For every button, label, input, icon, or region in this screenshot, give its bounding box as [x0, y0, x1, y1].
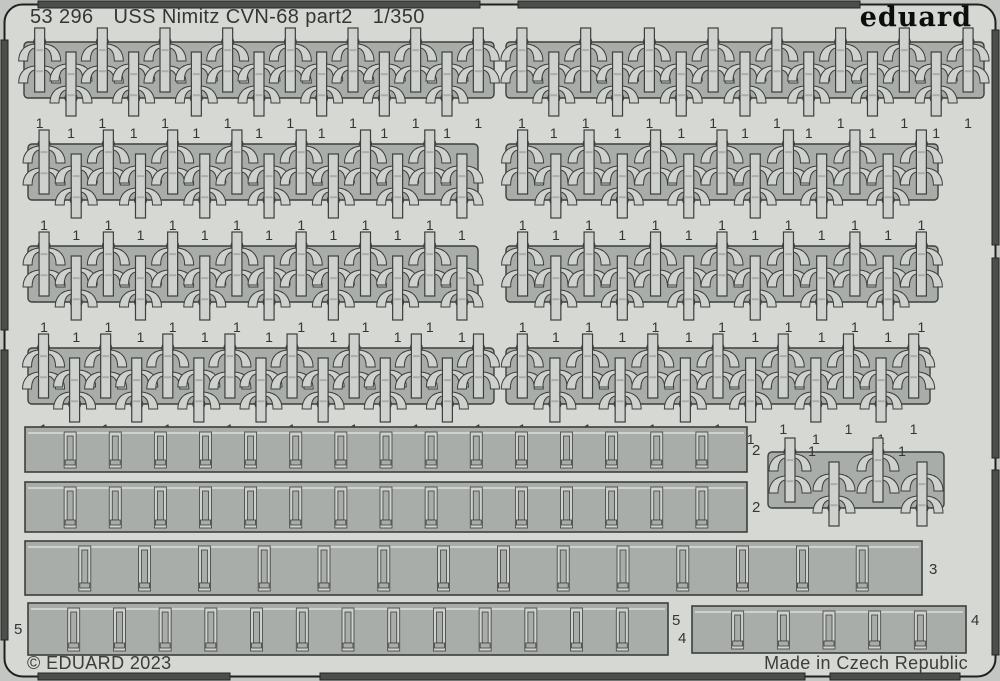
part-number-label: 1 — [67, 125, 75, 141]
slot-post-foot — [738, 583, 748, 588]
part-number-label: 1 — [458, 329, 466, 345]
post-etch-line — [965, 49, 972, 51]
slot-post — [162, 612, 168, 643]
post-etch-line — [812, 379, 819, 381]
post-etch-line — [652, 151, 659, 153]
post-etch-line — [318, 73, 325, 75]
part-number-label: 1 — [585, 217, 593, 233]
stanchion-post — [613, 52, 623, 116]
slot-post-foot — [155, 460, 165, 465]
stanchion-post — [71, 154, 81, 218]
post-etch-line — [137, 277, 144, 279]
slot-post — [872, 615, 878, 641]
post-etch-line — [685, 277, 692, 279]
post-etch-line — [901, 70, 908, 72]
slot-post-foot — [336, 520, 346, 525]
post-etch-line — [649, 376, 656, 378]
stanchion-post — [411, 28, 421, 92]
post-etch-line — [552, 175, 559, 177]
part-number-label: 1 — [380, 125, 388, 141]
frame-bar — [38, 673, 230, 680]
stanchion-post — [811, 358, 821, 422]
slot-post — [654, 436, 660, 460]
part-number-label: 1 — [265, 227, 273, 243]
frame-bar — [1, 40, 8, 330]
part-number-label: 1 — [751, 329, 759, 345]
part-number-label: 1 — [779, 421, 787, 437]
stanchion-post — [393, 154, 403, 218]
slot-post — [441, 550, 447, 583]
part-number-label: 1 — [72, 329, 80, 345]
stanchion-post — [717, 232, 727, 296]
slot-post — [293, 436, 299, 460]
part-number-label: 1 — [98, 115, 106, 131]
post-etch-line — [878, 400, 885, 402]
post-etch-line — [318, 94, 325, 96]
slot-post-foot — [498, 583, 508, 588]
part-number-label: 1 — [233, 217, 241, 233]
post-etch-line — [287, 70, 294, 72]
post-etch-line — [201, 298, 208, 300]
part-number-label: 1 — [224, 115, 232, 131]
slot-post-foot — [65, 460, 75, 465]
post-etch-line — [646, 49, 653, 51]
stanchion-post — [916, 232, 926, 296]
post-etch-line — [780, 376, 787, 378]
post-etch-line — [350, 49, 357, 51]
sheet-id: 53 296 — [30, 6, 94, 28]
slot-post — [201, 550, 207, 583]
top-rail-etch — [28, 546, 919, 548]
slot-post — [619, 612, 625, 643]
post-etch-line — [71, 400, 78, 402]
slot-post-foot — [870, 641, 880, 646]
stanchion-post — [442, 52, 452, 116]
slot-post-foot — [206, 643, 216, 648]
post-etch-line — [652, 253, 659, 255]
post-etch-line — [785, 172, 792, 174]
stanchion-post — [551, 256, 561, 320]
post-etch-line — [519, 355, 526, 357]
stanchion-post — [785, 438, 795, 502]
stanchion-post — [644, 28, 654, 92]
post-etch-line — [73, 298, 80, 300]
post-etch-line — [351, 376, 358, 378]
part-number-label: 1 — [805, 125, 813, 141]
stanchion-post — [617, 256, 627, 320]
part-number-label: 1 — [443, 125, 451, 141]
part-number-label: 1 — [233, 319, 241, 335]
stanchion-post — [296, 130, 306, 194]
stanchion-post — [899, 28, 909, 92]
post-etch-line — [298, 253, 305, 255]
slot-post-foot — [516, 520, 526, 525]
part-number-label: 1 — [474, 115, 482, 131]
part-number-label: 1 — [104, 319, 112, 335]
post-etch-line — [805, 94, 812, 96]
stanchion-post — [71, 256, 81, 320]
slot-post — [518, 436, 524, 460]
slot-post — [321, 550, 327, 583]
post-etch-line — [362, 274, 369, 276]
slot-post-foot — [379, 583, 389, 588]
stanchion-post — [349, 334, 359, 398]
post-etch-line — [350, 70, 357, 72]
post-etch-line — [71, 379, 78, 381]
stanchion-post — [717, 130, 727, 194]
post-etch-line — [413, 376, 420, 378]
stanchion-post — [160, 28, 170, 92]
part-number-label: 1 — [412, 115, 420, 131]
part-number-label: 1 — [652, 217, 660, 233]
post-etch-line — [918, 253, 925, 255]
post-etch-line — [102, 355, 109, 357]
post-etch-line — [965, 70, 972, 72]
post-etch-line — [885, 277, 892, 279]
stanchion-post — [850, 232, 860, 296]
slot-post — [500, 550, 506, 583]
stanchion-post — [136, 154, 146, 218]
slot-post-foot — [558, 583, 568, 588]
post-etch-line — [193, 73, 200, 75]
part-number-label: 1 — [818, 329, 826, 345]
slot-post — [518, 491, 524, 520]
slot-post — [917, 615, 923, 641]
slot-post-foot — [110, 520, 120, 525]
post-etch-line — [330, 196, 337, 198]
post-etch-line — [719, 172, 726, 174]
slot-post-foot — [857, 583, 867, 588]
post-etch-line — [330, 277, 337, 279]
post-etch-line — [586, 253, 593, 255]
stanchion-post — [132, 358, 142, 422]
part-number-label: 1 — [751, 227, 759, 243]
post-etch-line — [919, 483, 926, 485]
stanchion-post — [103, 130, 113, 194]
stanchion-post — [873, 438, 883, 502]
post-etch-line — [426, 253, 433, 255]
post-etch-line — [233, 274, 240, 276]
stanchion-post — [66, 52, 76, 116]
slot-post-foot — [252, 643, 262, 648]
part-number-label: 5 — [672, 612, 680, 629]
slot-post-foot — [617, 643, 627, 648]
post-etch-line — [582, 49, 589, 51]
slot-post-foot — [426, 520, 436, 525]
part-number-label: 5 — [14, 621, 22, 638]
stanchion-post — [287, 334, 297, 398]
post-etch-line — [289, 355, 296, 357]
post-etch-line — [362, 253, 369, 255]
post-etch-line — [519, 253, 526, 255]
post-etch-line — [68, 73, 75, 75]
slot-post — [528, 612, 534, 643]
slot-post-foot — [915, 641, 925, 646]
post-etch-line — [584, 355, 591, 357]
post-etch-line — [351, 355, 358, 357]
post-etch-line — [444, 400, 451, 402]
post-etch-line — [298, 151, 305, 153]
part-number-label: 1 — [718, 319, 726, 335]
slot-post-foot — [733, 641, 743, 646]
slot-post — [345, 612, 351, 643]
post-etch-line — [685, 175, 692, 177]
post-etch-line — [233, 253, 240, 255]
part-number-label: 1 — [329, 227, 337, 243]
part-number-label: 1 — [394, 227, 402, 243]
slot-post — [780, 615, 786, 641]
stanchion-post — [883, 154, 893, 218]
strip-panel — [25, 541, 922, 595]
part-number-label: 1 — [169, 319, 177, 335]
part-number-label: 1 — [808, 443, 816, 459]
post-etch-line — [918, 172, 925, 174]
post-etch-line — [552, 196, 559, 198]
slot-post — [620, 550, 626, 583]
stanchion-post — [829, 462, 839, 526]
slot-post-foot — [246, 520, 256, 525]
post-etch-line — [933, 73, 940, 75]
stanchion-post — [200, 256, 210, 320]
stanchion-post — [39, 232, 49, 296]
stanchion-post — [473, 334, 483, 398]
post-etch-line — [550, 73, 557, 75]
post-etch-line — [381, 94, 388, 96]
part-number-label: 1 — [837, 115, 845, 131]
slot-post-foot — [439, 583, 449, 588]
slot-post — [112, 491, 118, 520]
stanchion-post — [35, 28, 45, 92]
stanchion-post — [97, 28, 107, 92]
post-etch-line — [426, 274, 433, 276]
post-etch-line — [752, 196, 759, 198]
part-number-label: 1 — [910, 421, 918, 437]
post-etch-line — [552, 298, 559, 300]
stanchion-post — [70, 358, 80, 422]
slot-post — [859, 550, 865, 583]
stanchion-post — [380, 358, 390, 422]
post-etch-line — [233, 172, 240, 174]
post-etch-line — [678, 73, 685, 75]
post-etch-line — [444, 73, 451, 75]
slot-post-foot — [562, 460, 572, 465]
stanchion-post — [680, 358, 690, 422]
part-number-label: 1 — [426, 217, 434, 233]
stanchion-post — [750, 154, 760, 218]
post-etch-line — [287, 49, 294, 51]
post-etch-line — [266, 175, 273, 177]
post-etch-line — [164, 355, 171, 357]
part-number-label: 1 — [255, 125, 263, 141]
slot-post — [142, 550, 148, 583]
post-etch-line — [551, 379, 558, 381]
post-etch-line — [685, 298, 692, 300]
stanchion-post — [836, 28, 846, 92]
part-number-label: 1 — [869, 125, 877, 141]
post-etch-line — [614, 94, 621, 96]
stanchion-post — [191, 52, 201, 116]
post-etch-line — [458, 175, 465, 177]
slot-post — [248, 436, 254, 460]
stanchion-post — [264, 154, 274, 218]
part-number-label: 1 — [917, 217, 925, 233]
post-etch-line — [682, 379, 689, 381]
post-etch-line — [831, 483, 838, 485]
stanchion-post — [740, 52, 750, 116]
railing-strip-part4: 44 — [678, 606, 979, 653]
post-etch-line — [40, 355, 47, 357]
post-etch-line — [582, 70, 589, 72]
post-etch-line — [518, 49, 525, 51]
stanchion-post — [778, 334, 788, 398]
slot-post-foot — [607, 520, 617, 525]
post-etch-line — [266, 277, 273, 279]
post-etch-line — [130, 94, 137, 96]
stanchion-post — [318, 358, 328, 422]
part-number-label: 1 — [652, 319, 660, 335]
post-etch-line — [851, 151, 858, 153]
part-number-label: 1 — [518, 115, 526, 131]
post-etch-line — [787, 459, 794, 461]
slot-post — [383, 436, 389, 460]
pe-fret-drawing: 1111111111111111111111111111111111111111… — [0, 0, 1000, 681]
slot-post — [473, 491, 479, 520]
post-etch-line — [458, 298, 465, 300]
slot-post — [609, 436, 615, 460]
slot-post — [560, 550, 566, 583]
stanchion-post — [583, 334, 593, 398]
post-etch-line — [851, 274, 858, 276]
post-etch-line — [878, 379, 885, 381]
stanchion-post — [225, 334, 235, 398]
post-etch-line — [851, 253, 858, 255]
stanchion-post — [581, 28, 591, 92]
post-etch-line — [785, 151, 792, 153]
slot-post — [116, 612, 122, 643]
slot-post-foot — [199, 583, 209, 588]
slot-post-foot — [572, 643, 582, 648]
post-etch-line — [818, 196, 825, 198]
part-number-label: 1 — [618, 227, 626, 243]
slot-post — [203, 491, 209, 520]
stanchion-post — [103, 232, 113, 296]
part-number-label: 1 — [130, 125, 138, 141]
post-etch-line — [818, 277, 825, 279]
railing-strip-part2: 2 — [25, 482, 760, 532]
post-etch-line — [812, 400, 819, 402]
post-etch-line — [845, 355, 852, 357]
post-etch-line — [68, 94, 75, 96]
part-number-label: 1 — [845, 421, 853, 437]
post-etch-line — [102, 376, 109, 378]
post-etch-line — [475, 376, 482, 378]
post-etch-line — [919, 504, 926, 506]
stanchion-post — [361, 232, 371, 296]
post-etch-line — [617, 379, 624, 381]
slot-post — [82, 550, 88, 583]
made-in-text: Made in Czech Republic — [764, 653, 968, 674]
slot-post-foot — [291, 520, 301, 525]
slot-post-foot — [697, 520, 707, 525]
post-etch-line — [552, 277, 559, 279]
stanchion-post — [783, 130, 793, 194]
post-etch-line — [875, 459, 882, 461]
post-etch-line — [837, 49, 844, 51]
frame-bar — [830, 673, 960, 680]
slot-post-foot — [562, 520, 572, 525]
stanchion-post — [39, 334, 49, 398]
post-etch-line — [413, 355, 420, 357]
stanchion-post — [223, 28, 233, 92]
post-etch-line — [41, 151, 48, 153]
stanchion-post — [168, 232, 178, 296]
stanchion-post — [549, 52, 559, 116]
post-etch-line — [169, 172, 176, 174]
post-etch-line — [426, 172, 433, 174]
post-etch-line — [226, 355, 233, 357]
frame-bar — [992, 258, 999, 458]
post-etch-line — [901, 49, 908, 51]
post-etch-line — [258, 400, 265, 402]
slot-post — [740, 550, 746, 583]
stanchion-post — [909, 334, 919, 398]
post-etch-line — [614, 73, 621, 75]
slot-post-foot — [201, 460, 211, 465]
slot-post-foot — [65, 520, 75, 525]
stanchion-post — [425, 130, 435, 194]
post-etch-line — [412, 49, 419, 51]
post-etch-line — [780, 355, 787, 357]
post-etch-line — [752, 298, 759, 300]
post-etch-line — [137, 175, 144, 177]
post-etch-line — [105, 151, 112, 153]
post-etch-line — [233, 151, 240, 153]
part-number-label: 1 — [104, 217, 112, 233]
post-etch-line — [130, 73, 137, 75]
post-etch-line — [818, 298, 825, 300]
part-number-label: 1 — [297, 319, 305, 335]
post-etch-line — [685, 196, 692, 198]
post-etch-line — [36, 49, 43, 51]
post-etch-line — [105, 253, 112, 255]
slot-post — [338, 436, 344, 460]
post-etch-line — [885, 196, 892, 198]
post-etch-line — [719, 253, 726, 255]
slot-post-foot — [381, 460, 391, 465]
post-etch-line — [475, 355, 482, 357]
post-etch-line — [41, 253, 48, 255]
post-etch-line — [256, 73, 263, 75]
stanchion-post — [963, 28, 973, 92]
post-etch-line — [394, 175, 401, 177]
stanchion-post — [348, 28, 358, 92]
sheet-title: USS Nimitz CVN-68 part2 — [114, 6, 353, 28]
part-number-label: 1 — [201, 329, 209, 345]
part-number-label: 1 — [851, 319, 859, 335]
post-etch-line — [99, 49, 106, 51]
stanchion-post — [328, 256, 338, 320]
stanchion-post — [517, 28, 527, 92]
stanchion-post — [39, 130, 49, 194]
copyright-text: © EDUARD 2023 — [27, 653, 172, 674]
slot-post — [680, 550, 686, 583]
post-etch-line — [105, 172, 112, 174]
post-etch-line — [837, 70, 844, 72]
post-etch-line — [40, 376, 47, 378]
stanchion-post — [411, 334, 421, 398]
post-etch-line — [619, 298, 626, 300]
part-number-label: 1 — [137, 329, 145, 345]
